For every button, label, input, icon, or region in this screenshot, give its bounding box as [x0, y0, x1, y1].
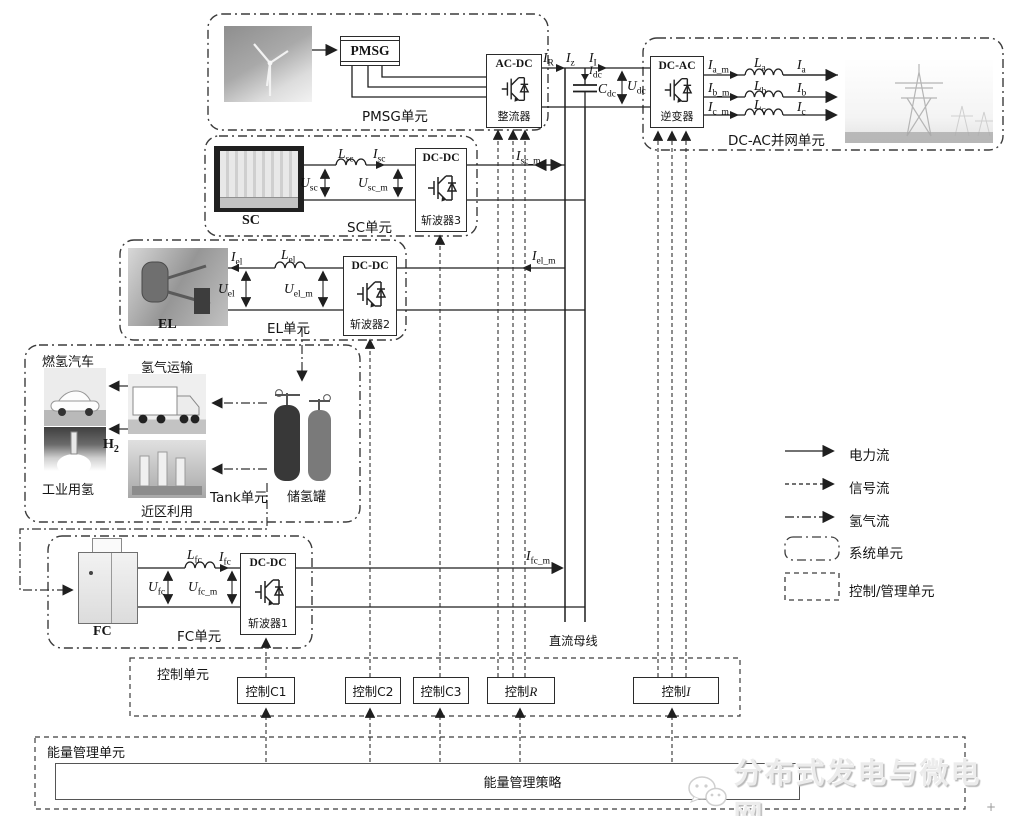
- watermark: 分布式发电与微电网: [686, 750, 1009, 816]
- pmsg-generator-label: PMSG: [351, 43, 390, 59]
- chopper3-name-label: 斩波器3: [421, 212, 461, 228]
- legend-signal-label: 信号流: [849, 477, 890, 497]
- fc-cabinet-divider: [111, 553, 113, 623]
- sc-base: [220, 197, 298, 208]
- ibm-label: Ib_m: [708, 80, 729, 99]
- chopper2-name-label: 斩波器2: [350, 316, 390, 332]
- igbt-icon: [354, 277, 386, 311]
- lc-label: Lc: [754, 97, 766, 116]
- usc-label: Usc: [300, 175, 318, 194]
- chopper3-box: DC-DC 斩波器3: [415, 148, 467, 232]
- supercapacitor-photo: [214, 146, 304, 212]
- fc-device-label: FC: [93, 624, 112, 640]
- idc-label: Idc: [589, 65, 602, 80]
- icm-label: Ic_m: [708, 99, 729, 118]
- lfc-label: Lfc: [187, 547, 202, 566]
- control-i-label: 控制I: [662, 682, 691, 700]
- igbt-icon: [661, 74, 693, 106]
- tower-sketch: [845, 58, 993, 143]
- inverter-name-label: 逆变器: [661, 108, 694, 124]
- legend-hydrogen-label: 氢气流: [849, 510, 890, 530]
- chopper2-type-label: DC-DC: [351, 260, 388, 272]
- control-c1-box: 控制C1: [237, 677, 295, 704]
- sc-device-label: SC: [242, 213, 260, 229]
- storage-tank-photo: [267, 385, 340, 483]
- ia-label: Ia: [797, 57, 806, 76]
- ufcm-label: Ufc_m: [188, 579, 217, 598]
- legend-system-box: [785, 537, 839, 560]
- sc-cells: [220, 151, 298, 198]
- igbt-icon: [252, 575, 284, 609]
- iz-label: Iz: [566, 50, 575, 69]
- industrial-hydrogen-photo: [44, 427, 106, 477]
- ems-strategy-label: 能量管理策略: [483, 772, 561, 791]
- ir-label: IR: [543, 50, 554, 69]
- inverter-box: DC-AC 逆变器: [650, 56, 704, 128]
- iel-label: Iel: [231, 249, 242, 268]
- chopper1-box: DC-DC 斩波器1: [240, 553, 296, 635]
- el-unit-label: EL单元: [267, 317, 310, 337]
- control-c2-label: 控制C2: [352, 682, 393, 700]
- chopper1-name-label: 斩波器1: [248, 615, 288, 631]
- hydrogen-car-photo: [44, 368, 106, 426]
- tank-car-label: 燃氢汽车: [42, 351, 94, 370]
- fc-knob: [89, 571, 93, 575]
- pmsg-generator-box: PMSG: [340, 36, 400, 66]
- diagram: PMSG AC-DC 整流器 DC-AC 逆变器 DC-DC 斩波器3 DC-D…: [0, 0, 1009, 816]
- uelm-label: Uel_m: [284, 281, 313, 300]
- local-use-photo: [128, 440, 206, 498]
- chopper3-type-label: DC-DC: [422, 152, 459, 164]
- tank-transport-label: 氢气运输: [141, 357, 193, 376]
- tank-industry-label: 工业用氢: [42, 479, 94, 498]
- legend-control-box: [785, 573, 839, 600]
- la-label: La: [754, 55, 766, 74]
- gen-double-line-top: [341, 40, 399, 41]
- lel-label: Lel: [281, 247, 295, 266]
- control-r-label: 控制R: [505, 682, 538, 700]
- wind-turbine-sketch: [224, 26, 312, 102]
- ifc-label: Ifc: [219, 549, 231, 568]
- el-device-label: EL: [158, 317, 177, 333]
- dc-bus-label: 直流母线: [549, 631, 598, 649]
- sc-unit-label: SC单元: [347, 216, 392, 236]
- grid-tower-photo: [845, 58, 993, 143]
- tank-storage-label: 储氢罐: [287, 486, 326, 505]
- ib-label: Ib: [797, 80, 806, 99]
- cdc-capacitor: [573, 85, 597, 92]
- plant-sketch: [128, 440, 206, 498]
- uscm-label: Usc_m: [358, 175, 388, 194]
- inverter-type-label: DC-AC: [658, 60, 695, 72]
- pmsg-phase-lines: [352, 66, 486, 97]
- fc-unit-label: FC单元: [177, 625, 221, 645]
- iscm-label: Isc_m: [516, 148, 541, 167]
- control-c3-box: 控制C3: [413, 677, 469, 704]
- ems-unit-label: 能量管理单元: [47, 742, 125, 761]
- electrolyzer-photo: [128, 248, 228, 326]
- udc-label: Udc: [627, 78, 646, 97]
- igbt-icon: [498, 73, 530, 105]
- control-i-box: 控制I: [633, 677, 719, 704]
- lb-label: Lb: [754, 78, 766, 97]
- rocket-sketch: [44, 427, 106, 477]
- watermark-text: 分布式发电与微电网: [733, 750, 1009, 816]
- legend-samples: [785, 451, 839, 600]
- igbt-icon: [425, 171, 457, 205]
- legend-power-label: 电力流: [849, 444, 890, 464]
- legend-control-unit-label: 控制/管理单元: [849, 580, 935, 600]
- rectifier-type-label: AC-DC: [495, 58, 532, 70]
- h2-label: H2: [103, 437, 119, 455]
- ufc-label: Ufc: [148, 579, 165, 598]
- rectifier-name-label: 整流器: [498, 108, 531, 124]
- wechat-icon: [686, 773, 727, 811]
- car-sketch: [44, 368, 106, 426]
- cylinders-sketch: [267, 385, 340, 483]
- truck-sketch: [128, 374, 206, 434]
- control-unit-label: 控制单元: [157, 664, 209, 683]
- lsc-label: Lsc: [338, 146, 353, 165]
- tank-unit-label: Tank单元: [210, 486, 268, 506]
- gen-double-line-bottom: [341, 61, 399, 62]
- fuel-cell-photo: [78, 552, 138, 624]
- control-c1-label: 控制C1: [245, 682, 286, 700]
- control-r-box: 控制R: [487, 677, 555, 704]
- tank-local-label: 近区利用: [141, 501, 193, 520]
- ifcm-label: Ifc_m: [526, 548, 550, 567]
- isc-label: Isc: [373, 146, 385, 165]
- chopper2-box: DC-DC 斩波器2: [343, 256, 397, 336]
- ic-label: Ic: [797, 99, 806, 118]
- hydrogen-truck-photo: [128, 374, 206, 434]
- grid-unit-label: DC-AC并网单元: [728, 129, 825, 149]
- uel-label: Uel: [218, 281, 235, 300]
- cdc-label: Cdc: [598, 81, 616, 100]
- rectifier-box: AC-DC 整流器: [486, 54, 542, 128]
- control-c3-label: 控制C3: [420, 682, 461, 700]
- iam-label: Ia_m: [708, 57, 729, 76]
- legend-system-unit-label: 系统单元: [849, 542, 903, 562]
- ielm-label: Iel_m: [532, 248, 556, 267]
- electrolyzer-sketch: [128, 248, 228, 326]
- control-c2-box: 控制C2: [345, 677, 401, 704]
- pmsg-unit-label: PMSG单元: [362, 105, 428, 125]
- wind-turbine-photo: [224, 26, 312, 102]
- chopper1-type-label: DC-DC: [249, 557, 286, 569]
